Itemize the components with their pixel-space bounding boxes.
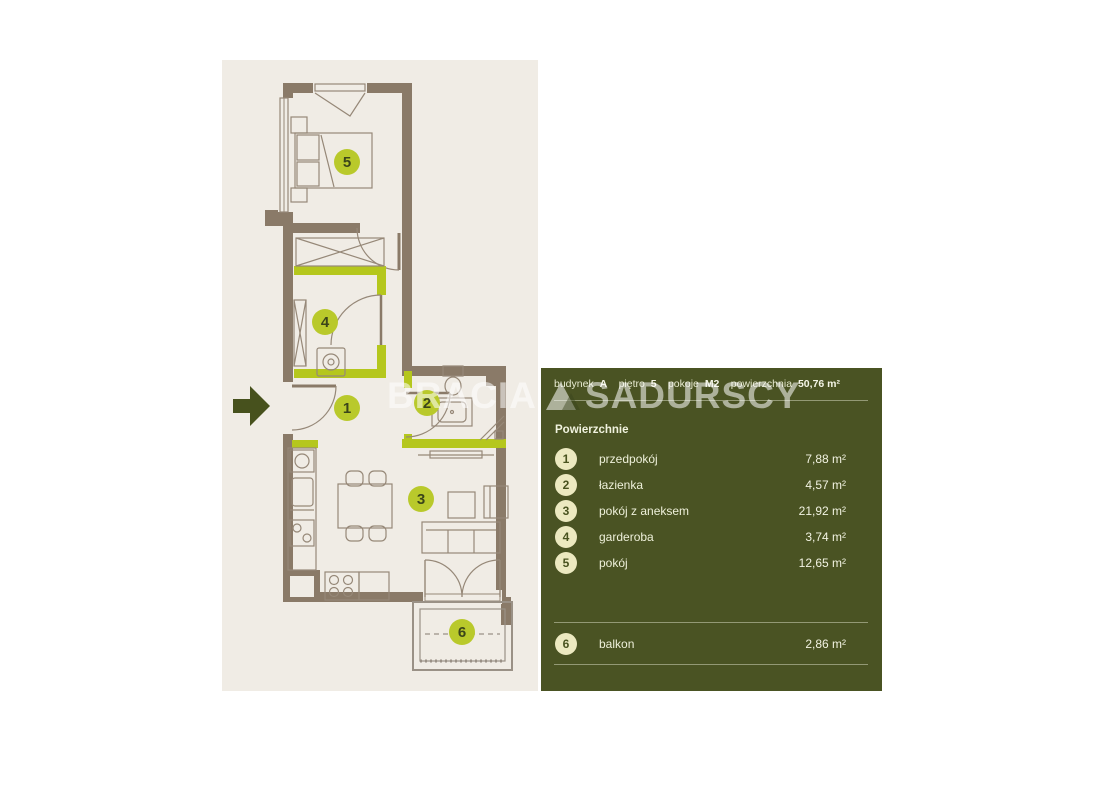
header-building: budynek A <box>554 377 607 391</box>
balcony-divider-bottom <box>554 664 868 665</box>
room-marker-1: 1 <box>334 395 360 421</box>
balcony-divider-top <box>554 622 868 623</box>
room-name: garderoba <box>599 530 654 544</box>
room-marker-6: 6 <box>449 619 475 645</box>
room-badge-1: 1 <box>555 448 577 470</box>
header-floor: piętro 5 <box>619 377 657 391</box>
header-rooms: pokoje M2 <box>668 377 719 391</box>
svg-text:3: 3 <box>417 491 425 508</box>
room-area: 4,57 m² <box>805 478 846 492</box>
room-badge-3: 3 <box>555 500 577 522</box>
svg-text:4: 4 <box>321 314 330 331</box>
room-area: 2,86 m² <box>805 637 846 651</box>
room-row-4: 4 garderoba 3,74 m² <box>541 524 882 550</box>
room-area: 7,88 m² <box>805 452 846 466</box>
svg-text:2: 2 <box>423 395 431 412</box>
room-row-5: 5 pokój 12,65 m² <box>541 550 882 576</box>
svg-text:6: 6 <box>458 624 466 641</box>
floorplan-page: 1 2 3 4 5 6 <box>0 0 1115 790</box>
panel-header: budynek A piętro 5 pokoje M2 powierzchni… <box>541 368 882 391</box>
svg-text:5: 5 <box>343 154 351 171</box>
room-area: 12,65 m² <box>799 556 846 570</box>
room-area: 21,92 m² <box>799 504 846 518</box>
room-name: łazienka <box>599 478 643 492</box>
room-badge-5: 5 <box>555 552 577 574</box>
room-marker-2: 2 <box>414 390 440 416</box>
room-badge-6: 6 <box>555 633 577 655</box>
header-divider <box>554 400 868 401</box>
room-name: pokój z aneksem <box>599 504 689 518</box>
room-name: balkon <box>599 637 634 651</box>
room-marker-4: 4 <box>312 309 338 335</box>
svg-text:1: 1 <box>343 400 351 417</box>
header-area: powierzchnia 50,76 m² <box>731 377 840 391</box>
room-marker-3: 3 <box>408 486 434 512</box>
room-row-6: 6 balkon 2,86 m² <box>541 631 882 657</box>
room-row-3: 3 pokój z aneksem 21,92 m² <box>541 498 882 524</box>
info-panel: budynek A piętro 5 pokoje M2 powierzchni… <box>541 368 882 691</box>
room-name: przedpokój <box>599 452 658 466</box>
room-name: pokój <box>599 556 628 570</box>
room-row-2: 2 łazienka 4,57 m² <box>541 472 882 498</box>
room-marker-5: 5 <box>334 149 360 175</box>
kitchen-lime-wall <box>292 440 318 448</box>
room-badge-2: 2 <box>555 474 577 496</box>
room-list: 1 przedpokój 7,88 m² 2 łazienka 4,57 m² … <box>541 446 882 576</box>
room-area: 3,74 m² <box>805 530 846 544</box>
section-title: Powierzchnie <box>555 424 882 436</box>
room-row-1: 1 przedpokój 7,88 m² <box>541 446 882 472</box>
room-badge-4: 4 <box>555 526 577 548</box>
